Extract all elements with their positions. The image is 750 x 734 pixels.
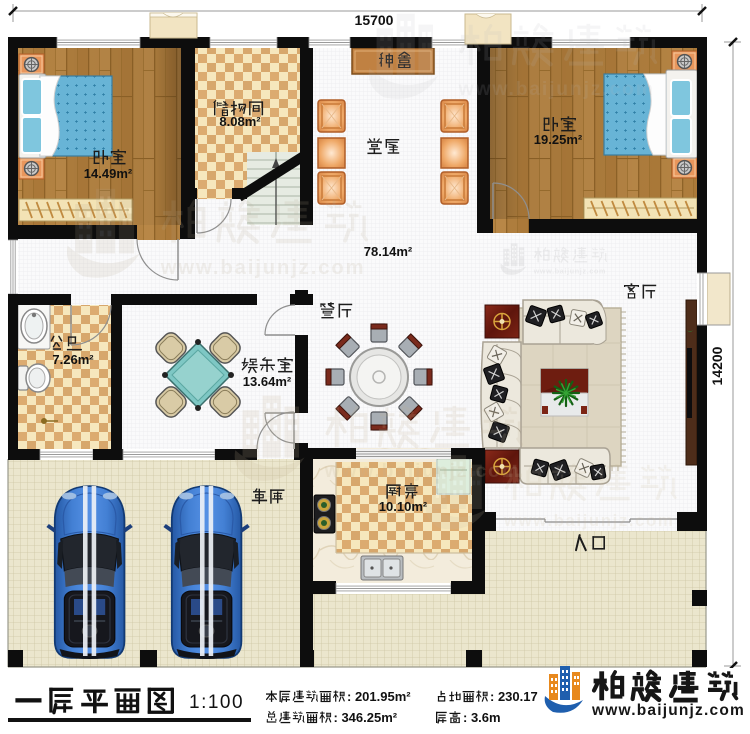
svg-text:14.49m²: 14.49m² (84, 166, 133, 181)
svg-text:10.10m²: 10.10m² (379, 499, 428, 514)
svg-text:78.14m²: 78.14m² (364, 244, 413, 259)
svg-text:www.baijunjz.com: www.baijunjz.com (503, 511, 674, 530)
svg-text:1:100: 1:100 (189, 692, 244, 713)
svg-text:www.baijunjz.com: www.baijunjz.com (324, 461, 521, 482)
svg-text:www.baijunjz.com: www.baijunjz.com (533, 267, 606, 275)
svg-text:19.25m²: 19.25m² (534, 132, 583, 147)
svg-text:: 230.17: : 230.17 (490, 689, 538, 704)
svg-text:14200: 14200 (709, 346, 725, 385)
svg-text:www.baijunjz.com: www.baijunjz.com (591, 702, 745, 719)
svg-text:8.08m²: 8.08m² (219, 114, 261, 129)
svg-text:: 201.95m²: : 201.95m² (347, 689, 411, 704)
svg-text:: 346.25m²: : 346.25m² (334, 710, 398, 725)
svg-text:7.26m²: 7.26m² (52, 352, 94, 367)
svg-text:15700: 15700 (355, 12, 394, 28)
svg-text:www.baijunjz.com: www.baijunjz.com (160, 257, 366, 279)
svg-text:: 3.6m: : 3.6m (463, 710, 501, 725)
svg-text:13.64m²: 13.64m² (243, 374, 292, 389)
svg-text:www.baijunjz.com: www.baijunjz.com (458, 79, 655, 100)
